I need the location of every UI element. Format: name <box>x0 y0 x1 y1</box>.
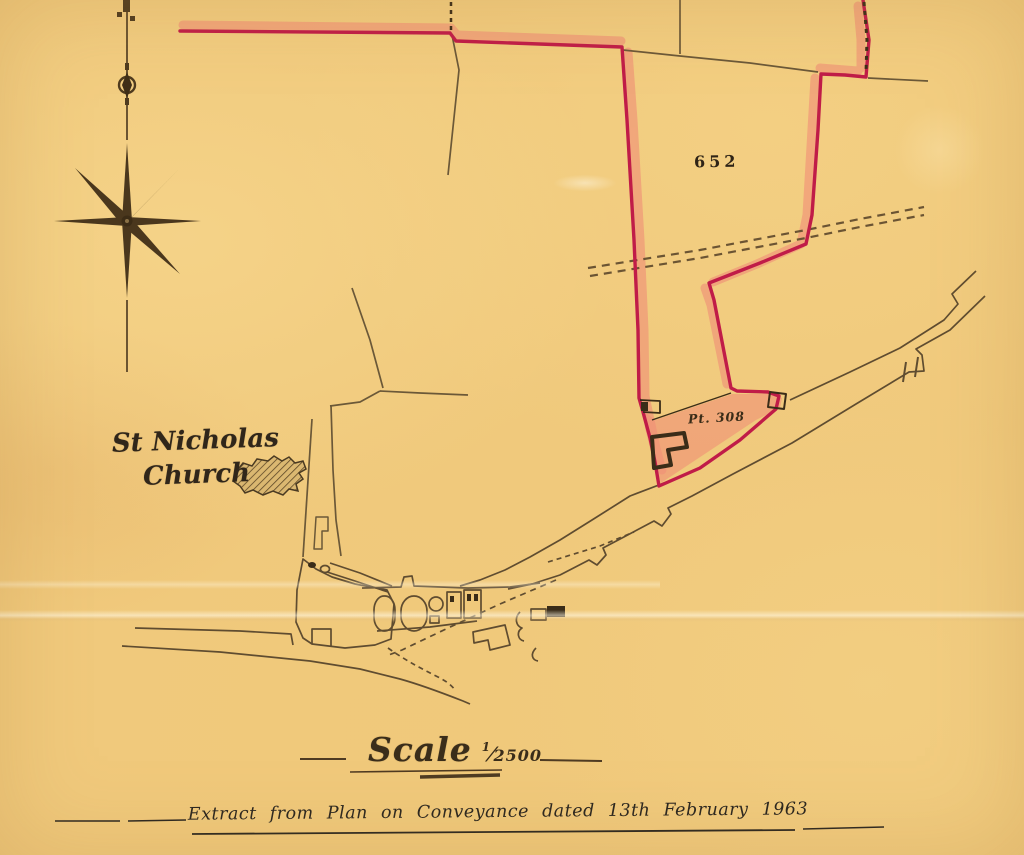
scale-denominator: 2500 <box>494 746 543 765</box>
church-label-line2: Church <box>96 455 297 496</box>
church-label-line1: St Nicholas <box>95 421 296 462</box>
map-canvas: 652 Pt. 308 St Nicholas Church Scale1⁄25… <box>0 0 1024 855</box>
scale-word: Scale <box>368 730 472 769</box>
compass-rose-icon <box>54 0 201 372</box>
parcel-308-wash <box>643 394 782 483</box>
scale-fraction: 1⁄2500 <box>482 742 542 766</box>
church-label: St Nicholas Church <box>95 421 297 496</box>
scale-numerator: 1 <box>482 740 490 754</box>
parcel-652-label: 652 <box>694 152 740 172</box>
parcel-308-label: Pt. 308 <box>688 409 746 427</box>
field-boundaries <box>303 0 928 557</box>
scale-title: Scale1⁄2500 <box>290 730 620 769</box>
